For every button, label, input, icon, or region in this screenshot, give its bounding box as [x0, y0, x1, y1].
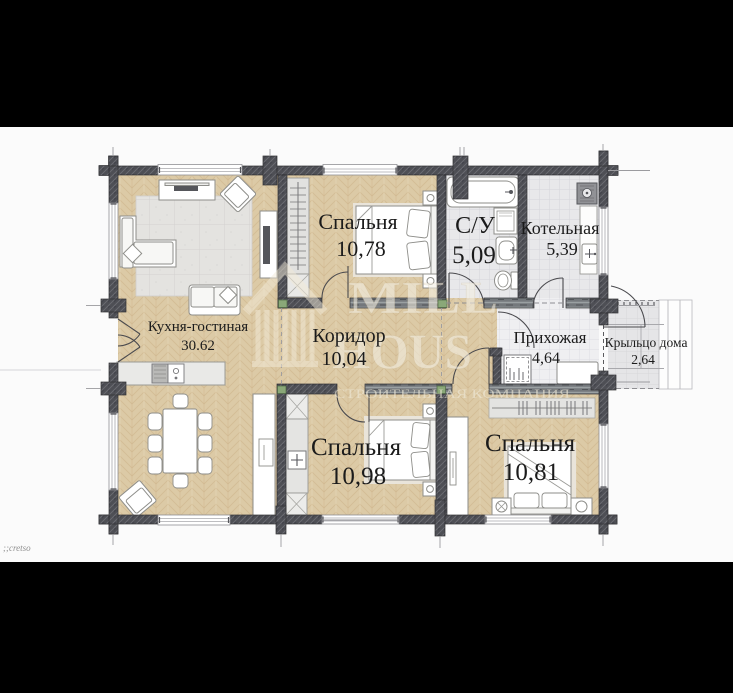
- svg-text:5,39: 5,39: [546, 239, 578, 259]
- svg-text:5,09: 5,09: [452, 242, 496, 269]
- svg-text:10,04: 10,04: [322, 348, 367, 370]
- svg-text:10,81: 10,81: [503, 459, 559, 486]
- svg-text:Спальня: Спальня: [311, 434, 402, 461]
- svg-text:Котельная: Котельная: [521, 218, 600, 238]
- svg-text:4,64: 4,64: [532, 350, 560, 367]
- svg-text:С/У: С/У: [455, 213, 495, 239]
- svg-text:;;cretso: ;;cretso: [3, 543, 31, 553]
- svg-text:СТРОИТЕЛЬНАЯ КОМПАНИЯ: СТРОИТЕЛЬНАЯ КОМПАНИЯ: [334, 387, 570, 401]
- svg-text:10,98: 10,98: [330, 463, 386, 490]
- svg-text:Коридор: Коридор: [312, 325, 385, 347]
- svg-text:Спальня: Спальня: [485, 430, 576, 457]
- svg-text:2,64: 2,64: [631, 352, 655, 367]
- svg-text:Крыльцо дома: Крыльцо дома: [605, 335, 688, 350]
- svg-text:Спальня: Спальня: [318, 209, 397, 234]
- svg-text:Прихожая: Прихожая: [514, 328, 587, 347]
- svg-text:MILL: MILL: [348, 272, 498, 323]
- svg-text:30.62: 30.62: [181, 338, 215, 354]
- svg-text:Кухня-гостиная: Кухня-гостиная: [148, 319, 248, 335]
- svg-text:10,78: 10,78: [336, 236, 386, 261]
